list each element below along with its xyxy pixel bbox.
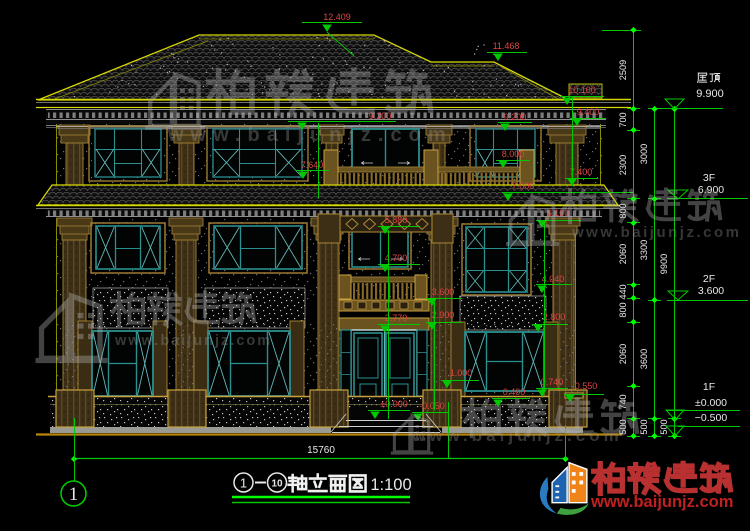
svg-text:7.400: 7.400: [570, 167, 593, 177]
svg-text:7.000: 7.000: [512, 181, 535, 191]
svg-text:9.400: 9.400: [577, 107, 600, 117]
svg-text:4.040: 4.040: [542, 274, 565, 284]
svg-text:700: 700: [618, 112, 628, 127]
svg-text:12.409: 12.409: [323, 12, 351, 22]
svg-text:6.100: 6.100: [547, 208, 570, 218]
svg-text:±0.000: ±0.000: [380, 399, 407, 409]
svg-text:2F: 2F: [703, 273, 715, 285]
svg-text:www.baijunjz.com: www.baijunjz.com: [571, 224, 741, 241]
svg-text:1:100: 1:100: [370, 476, 411, 494]
svg-text:500: 500: [639, 419, 649, 434]
svg-text:8.000: 8.000: [502, 149, 525, 159]
svg-text:2300: 2300: [618, 155, 628, 175]
svg-text:9.900: 9.900: [696, 88, 724, 100]
svg-text:9.200: 9.200: [504, 112, 527, 122]
svg-text:3300: 3300: [639, 240, 649, 260]
svg-text:9900: 9900: [659, 254, 669, 274]
svg-text:3000: 3000: [639, 144, 649, 164]
svg-text:800: 800: [618, 302, 628, 317]
svg-text:www.baijunjz.com: www.baijunjz.com: [167, 124, 453, 146]
svg-text:±0.000: ±0.000: [695, 397, 727, 409]
svg-text:−0.500: −0.500: [695, 412, 728, 424]
svg-text:-0.050: -0.050: [419, 401, 445, 411]
svg-text:3F: 3F: [703, 172, 715, 184]
svg-text:10: 10: [271, 479, 283, 490]
svg-text:2509: 2509: [618, 60, 628, 80]
svg-text:0.400: 0.400: [503, 387, 526, 397]
svg-text:www.baijunjz.com: www.baijunjz.com: [114, 333, 272, 349]
svg-text:15760: 15760: [307, 445, 335, 456]
svg-text:440: 440: [618, 284, 628, 299]
svg-text:1: 1: [69, 484, 79, 505]
svg-text:1.000: 1.000: [450, 368, 473, 378]
svg-text:11.468: 11.468: [493, 41, 520, 51]
svg-text:www.baijunjz.com: www.baijunjz.com: [590, 493, 733, 511]
svg-text:2060: 2060: [618, 344, 628, 364]
svg-text:7.640: 7.640: [301, 160, 324, 170]
svg-text:1: 1: [240, 476, 247, 491]
svg-text:2060: 2060: [618, 244, 628, 264]
svg-text:3600: 3600: [639, 349, 649, 369]
svg-text:1F: 1F: [703, 381, 715, 393]
svg-text:10.100: 10.100: [568, 85, 596, 95]
svg-text:2.800: 2.800: [543, 312, 566, 322]
svg-text:3.600: 3.600: [698, 285, 724, 297]
svg-text:0.550: 0.550: [575, 381, 598, 391]
svg-text:2.900: 2.900: [432, 310, 455, 320]
svg-text:3.600: 3.600: [432, 287, 455, 297]
svg-text:5.880: 5.880: [385, 215, 408, 225]
svg-text:www.baijunjz.com: www.baijunjz.com: [411, 426, 623, 445]
